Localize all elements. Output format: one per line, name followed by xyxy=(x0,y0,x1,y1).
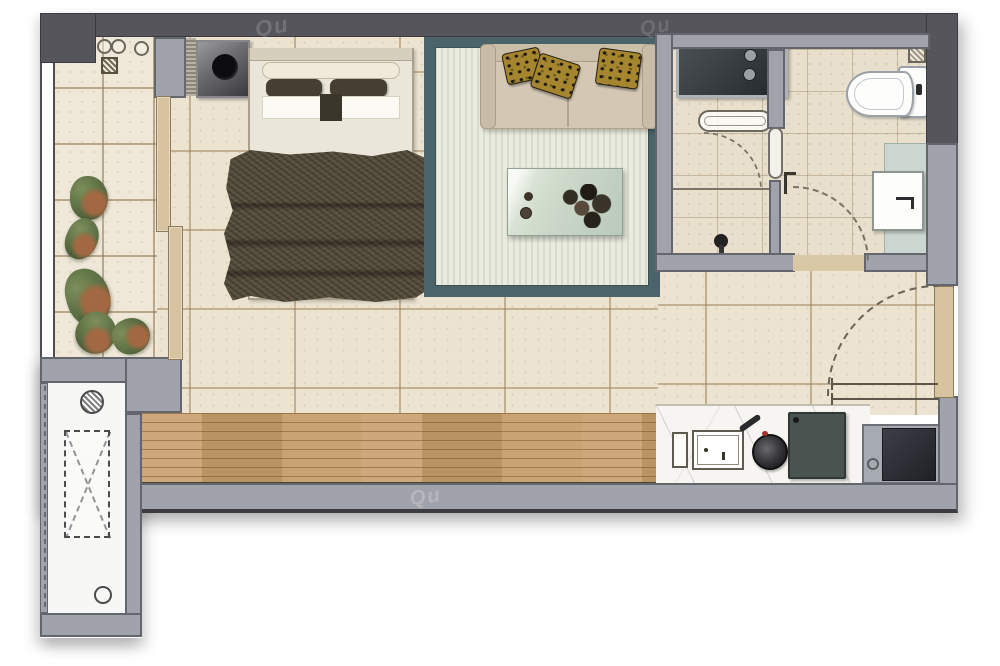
shaft-duct-box xyxy=(64,430,110,538)
bathroom-door-swing-arc xyxy=(793,187,868,262)
shaft-drain-circle xyxy=(94,586,112,604)
shower-door-swing-arc xyxy=(704,133,761,190)
entry-threshold-line xyxy=(832,393,938,405)
floor-plan: Qu Qu Qu xyxy=(0,0,1000,666)
annotation-overlay xyxy=(0,0,1000,666)
entry-door-swing-arc xyxy=(828,286,938,396)
entry-threshold-line xyxy=(832,378,938,390)
shaft-pipe-circle-hatched xyxy=(80,390,104,414)
